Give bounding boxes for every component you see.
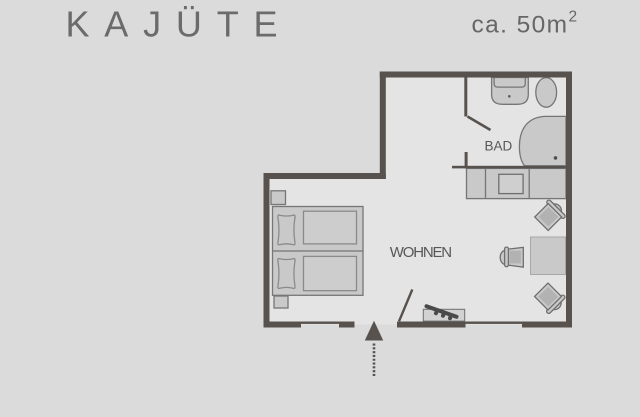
svg-text:ca. 50m2: ca. 50m2 <box>472 8 579 38</box>
svg-text:WOHNEN: WOHNEN <box>390 244 451 261</box>
svg-text:BAD: BAD <box>485 139 513 154</box>
svg-text:KAJÜTE: KAJÜTE <box>66 4 293 45</box>
